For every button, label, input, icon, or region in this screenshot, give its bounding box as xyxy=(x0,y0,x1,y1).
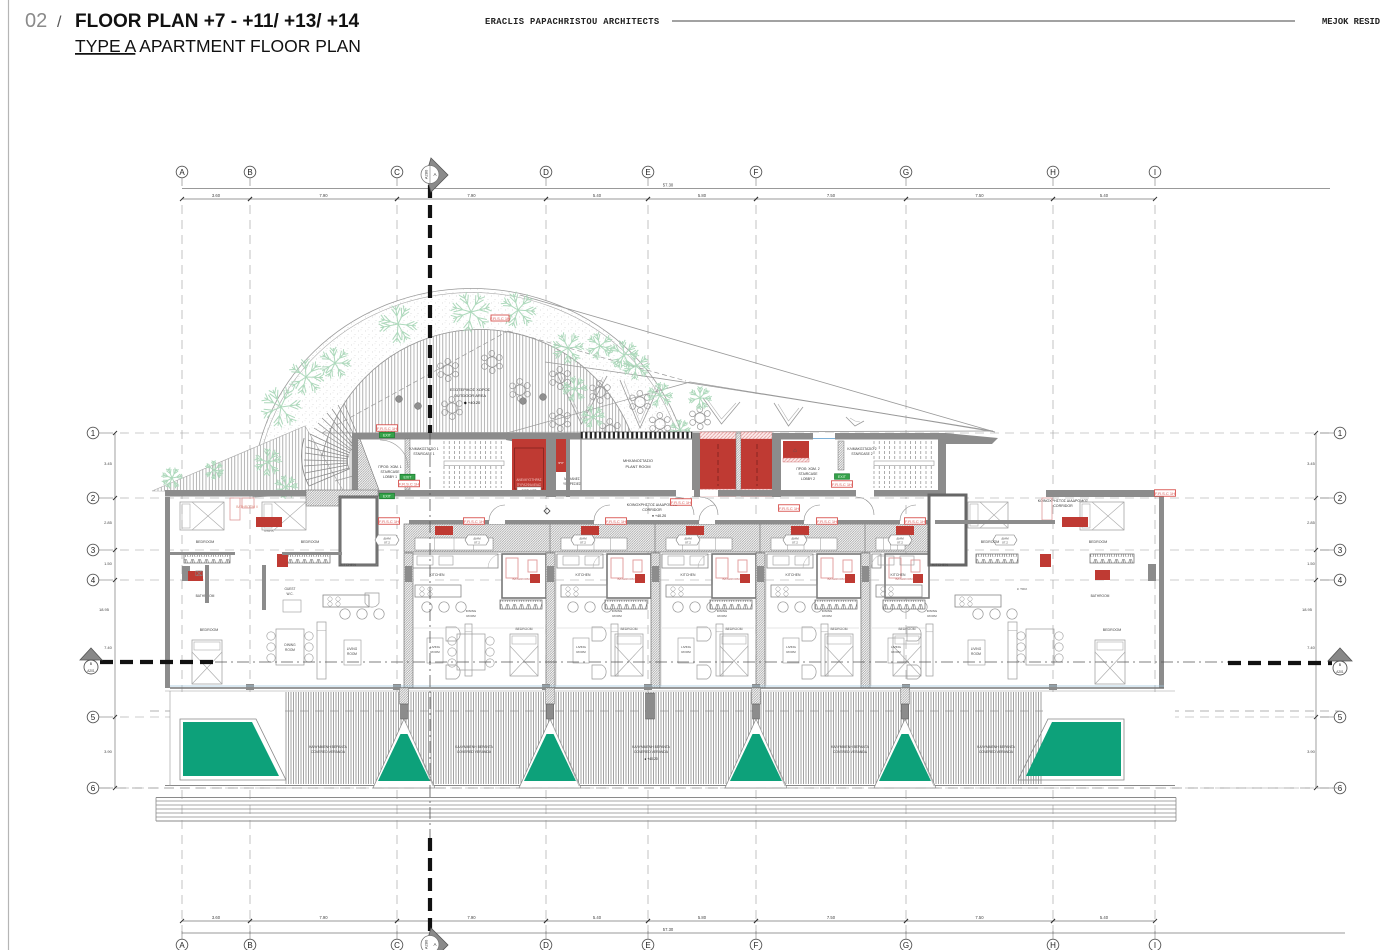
svg-text:ΠΡΟΘ. ΧΩΜ. 2: ΠΡΟΘ. ΧΩΜ. 2 xyxy=(796,467,819,471)
svg-text:7.40: 7.40 xyxy=(104,645,113,650)
svg-text:BATHROOM: BATHROOM xyxy=(895,577,913,581)
svg-text:5.80: 5.80 xyxy=(698,915,707,920)
svg-text:A201: A201 xyxy=(87,669,95,673)
svg-text:DINING: DINING xyxy=(284,643,296,647)
svg-text:MEJOK RESID: MEJOK RESID xyxy=(1322,17,1380,27)
svg-text:3.90: 3.90 xyxy=(104,749,113,754)
svg-text:● +40.20: ● +40.20 xyxy=(652,514,666,518)
svg-text:KITCHEN: KITCHEN xyxy=(932,563,948,567)
svg-text:KITCHEN: KITCHEN xyxy=(786,573,801,577)
svg-text:LOBBY 1: LOBBY 1 xyxy=(383,475,397,479)
svg-text:A: A xyxy=(179,168,185,177)
svg-text:7.40: 7.40 xyxy=(1307,645,1316,650)
svg-text:07.2: 07.2 xyxy=(685,541,691,545)
svg-text:1: 1 xyxy=(91,429,96,438)
svg-text:STAIRCASE: STAIRCASE xyxy=(381,470,401,474)
svg-text:ΚΑΛΥΜΜΕΝΗ ΒΕΡΑΝΤΑ: ΚΑΛΥΜΜΕΝΗ ΒΕΡΑΝΤΑ xyxy=(455,745,494,749)
svg-text:EXIT: EXIT xyxy=(838,475,847,479)
svg-text:⌂: ⌂ xyxy=(793,448,797,454)
svg-text:ΚΑΛΥΜΜΕΝΗ ΒΕΡΑΝΤΑ: ΚΑΛΥΜΜΕΝΗ ΒΕΡΑΝΤΑ xyxy=(977,745,1016,749)
svg-text:C: C xyxy=(394,168,400,177)
svg-text:BATHROOM: BATHROOM xyxy=(512,577,530,581)
svg-text:LIVING: LIVING xyxy=(971,647,982,651)
svg-text:BATHROOM: BATHROOM xyxy=(617,577,635,581)
svg-text:ROOM: ROOM xyxy=(430,650,440,654)
svg-text:ROOM: ROOM xyxy=(285,648,295,652)
svg-text:LIVING: LIVING xyxy=(681,645,692,649)
svg-text:BEDROOM: BEDROOM xyxy=(196,540,215,544)
svg-text:4: 4 xyxy=(1338,576,1343,585)
svg-text:F.R.S.C 1H: F.R.S.C 1H xyxy=(377,426,397,431)
svg-text:ROOM: ROOM xyxy=(971,652,981,656)
svg-text:ΜΗΧΑΝΟΣΤΑΣΙΟ: ΜΗΧΑΝΟΣΤΑΣΙΟ xyxy=(623,459,653,463)
svg-text:KITCHEN: KITCHEN xyxy=(340,563,356,567)
svg-text:02: 02 xyxy=(25,10,47,32)
svg-text:DINING: DINING xyxy=(612,609,623,613)
svg-text:5: 5 xyxy=(91,713,96,722)
svg-text:LIVING: LIVING xyxy=(430,645,441,649)
svg-text:ROOM: ROOM xyxy=(576,650,586,654)
svg-text:7.50: 7.50 xyxy=(827,915,836,920)
svg-text:07.2: 07.2 xyxy=(384,541,390,545)
svg-text:5.80: 5.80 xyxy=(698,193,707,198)
svg-text:DINING: DINING xyxy=(927,609,938,613)
svg-text:ΠΡΟΘ. ΧΩΜ. 1: ΠΡΟΘ. ΧΩΜ. 1 xyxy=(378,465,401,469)
svg-text:BEDROOM: BEDROOM xyxy=(301,540,320,544)
svg-text:BEDROOM: BEDROOM xyxy=(515,627,532,631)
svg-text:ΚΑΛΥΜΜΕΝΗ ΒΕΡΑΝΤΑ: ΚΑΛΥΜΜΕΝΗ ΒΕΡΑΝΤΑ xyxy=(309,745,348,749)
svg-text:LIVING: LIVING xyxy=(891,645,902,649)
svg-text:DINING: DINING xyxy=(717,609,728,613)
svg-text:EXIT: EXIT xyxy=(404,476,413,480)
svg-text:3: 3 xyxy=(1338,546,1343,555)
svg-text:ROOM: ROOM xyxy=(786,650,796,654)
svg-text:CORRIDOR: CORRIDOR xyxy=(642,508,662,512)
svg-text:ΥΠΗΡΕΣΙΕΣ: ΥΠΗΡΕΣΙΕΣ xyxy=(563,482,581,486)
svg-text:KITCHEN: KITCHEN xyxy=(891,573,906,577)
svg-text:ROOM: ROOM xyxy=(347,652,357,656)
svg-text:ERACLIS PAPACHRISTOU ARCHITECT: ERACLIS PAPACHRISTOU ARCHITECTS xyxy=(485,17,660,27)
svg-text:ROOM: ROOM xyxy=(681,650,691,654)
svg-text:07.2: 07.2 xyxy=(580,541,586,545)
svg-text:BEDROOM: BEDROOM xyxy=(830,627,847,631)
svg-text:F.R.S.C 1H: F.R.S.C 1H xyxy=(379,519,399,524)
svg-text:3: 3 xyxy=(91,546,96,555)
svg-text:ΝΤΟΥΛ: ΝΤΟΥΛ xyxy=(264,529,273,533)
svg-text:G: G xyxy=(903,168,909,177)
svg-text:57.30: 57.30 xyxy=(663,183,674,188)
svg-text:6: 6 xyxy=(91,784,96,793)
svg-text:5.40: 5.40 xyxy=(1100,915,1109,920)
svg-text:I: I xyxy=(1154,941,1156,950)
svg-text:F.R.S.C 1H: F.R.S.C 1H xyxy=(1155,491,1175,496)
svg-text:H: H xyxy=(1050,168,1056,177)
svg-text:LIVING: LIVING xyxy=(576,645,587,649)
svg-text:3. ΤΟΙΛ: 3. ΤΟΙΛ xyxy=(1017,587,1027,591)
svg-text:GUEST: GUEST xyxy=(285,587,296,591)
svg-text:A280: A280 xyxy=(424,939,429,949)
svg-text:ΚΛΙΜΑΚΟΣΤΑΣΙΟ 2: ΚΛΙΜΑΚΟΣΤΑΣΙΟ 2 xyxy=(847,447,876,451)
svg-text:57.30: 57.30 xyxy=(663,927,674,932)
svg-text:5.40: 5.40 xyxy=(1100,193,1109,198)
svg-text:F.R.S.C 1H: F.R.S.C 1H xyxy=(671,500,691,505)
svg-text:F.R.S.C 1H: F.R.S.C 1H xyxy=(399,481,419,486)
svg-text:A201: A201 xyxy=(1336,670,1344,674)
svg-text:LOBBY 2: LOBBY 2 xyxy=(801,477,815,481)
svg-text:STAIRCASE: STAIRCASE xyxy=(799,472,819,476)
svg-text:ΨΥΓ: ΨΥΓ xyxy=(558,461,565,465)
svg-text:● +40.20: ● +40.20 xyxy=(644,757,658,761)
svg-text:6: 6 xyxy=(1338,784,1343,793)
svg-text:STAIRCASE 1: STAIRCASE 1 xyxy=(413,452,434,456)
svg-text:BEDROOM: BEDROOM xyxy=(981,540,1000,544)
svg-text:5.40: 5.40 xyxy=(593,193,602,198)
svg-text:5.40: 5.40 xyxy=(593,915,602,920)
svg-text:PLANT ROOM: PLANT ROOM xyxy=(625,465,650,469)
svg-text:1.50: 1.50 xyxy=(104,561,113,566)
svg-text:A: A xyxy=(433,172,436,177)
svg-text:5: 5 xyxy=(1338,713,1343,722)
svg-text:BEDROOM: BEDROOM xyxy=(200,628,219,632)
svg-text:F.R.S.C 1H: F.R.S.C 1H xyxy=(905,519,925,524)
svg-text:TYPE A APARTMENT FLOOR PLAN: TYPE A APARTMENT FLOOR PLAN xyxy=(75,36,361,56)
svg-text:I: I xyxy=(1154,168,1156,177)
svg-text:STAIRCASE 2: STAIRCASE 2 xyxy=(851,452,872,456)
svg-text:D: D xyxy=(543,941,549,950)
svg-text:ROOM: ROOM xyxy=(466,614,476,618)
svg-text:07.2: 07.2 xyxy=(1002,541,1008,545)
svg-text:2.85: 2.85 xyxy=(104,520,113,525)
svg-text:1: 1 xyxy=(1338,429,1343,438)
svg-text:1.50: 1.50 xyxy=(1307,561,1316,566)
svg-text:OUTDOOR AREA: OUTDOOR AREA xyxy=(454,393,487,398)
svg-text:ROOM: ROOM xyxy=(822,614,832,618)
svg-text:07.2: 07.2 xyxy=(474,541,480,545)
svg-text:ΚΛΙΜΑΚΟΣΤΑΣΙΟ 1: ΚΛΙΜΑΚΟΣΤΑΣΙΟ 1 xyxy=(409,447,438,451)
svg-text:3.45: 3.45 xyxy=(104,461,113,466)
svg-text:A: A xyxy=(433,942,436,947)
svg-text:BEDROOM: BEDROOM xyxy=(725,627,742,631)
svg-text:F.R.S.C 1H: F.R.S.C 1H xyxy=(464,519,484,524)
svg-text:DINING: DINING xyxy=(822,609,833,613)
svg-text:18.95: 18.95 xyxy=(1302,607,1313,612)
svg-text:ROOM: ROOM xyxy=(717,614,727,618)
svg-text:EXIT: EXIT xyxy=(383,495,392,499)
svg-text:LIVING: LIVING xyxy=(786,645,797,649)
svg-text:H: H xyxy=(1050,941,1056,950)
svg-text:COVERED VERANDA: COVERED VERANDA xyxy=(634,750,669,754)
svg-text:G: G xyxy=(903,941,909,950)
svg-text:KITCHEN: KITCHEN xyxy=(430,573,445,577)
svg-text:B: B xyxy=(247,168,252,177)
svg-text:ΕΞΩΤΕΡΙΚΟΣ ΧΩΡΟΣ: ΕΞΩΤΕΡΙΚΟΣ ΧΩΡΟΣ xyxy=(450,387,491,392)
svg-text:B: B xyxy=(247,941,252,950)
svg-text:ΑΝΕΛΚΥΣΤΗΡΑΣ: ΑΝΕΛΚΥΣΤΗΡΑΣ xyxy=(516,478,541,482)
svg-text:FLOOR PLAN +7 - +11/ +13/ +14: FLOOR PLAN +7 - +11/ +13/ +14 xyxy=(75,11,360,32)
svg-text:ΚΑΛΥΜΜΕΝΗ ΒΕΡΑΝΤΑ: ΚΑΛΥΜΜΕΝΗ ΒΕΡΑΝΤΑ xyxy=(831,745,870,749)
svg-text:7.90: 7.90 xyxy=(467,915,476,920)
svg-text:7.90: 7.90 xyxy=(319,193,328,198)
svg-text:◆ +40.20: ◆ +40.20 xyxy=(464,400,481,405)
svg-text:DINING: DINING xyxy=(466,609,477,613)
svg-text:7.50: 7.50 xyxy=(827,193,836,198)
svg-text:7.90: 7.90 xyxy=(467,193,476,198)
svg-text:07.2: 07.2 xyxy=(897,541,903,545)
svg-text:BATHROOM: BATHROOM xyxy=(722,577,740,581)
svg-text:ΚΟΙΝΟΧΡΗΣΤΟΣ ΔΙΑΔΡΟΜΟΣ: ΚΟΙΝΟΧΡΗΣΤΟΣ ΔΙΑΔΡΟΜΟΣ xyxy=(1038,499,1089,503)
svg-text:ΠΥΡΑΣΦΑΛΕΙΑΣ: ΠΥΡΑΣΦΑΛΕΙΑΣ xyxy=(517,483,541,487)
svg-text:KITCHEN: KITCHEN xyxy=(576,573,591,577)
svg-text:BEDROOM: BEDROOM xyxy=(620,627,637,631)
svg-text:A280: A280 xyxy=(424,169,429,179)
svg-text:BEDROOM: BEDROOM xyxy=(1103,628,1122,632)
svg-text:F.R.S.C 1H: F.R.S.C 1H xyxy=(832,482,852,487)
svg-text:2: 2 xyxy=(1338,494,1343,503)
svg-text:W.C.: W.C. xyxy=(287,592,294,596)
svg-text:D: D xyxy=(543,168,549,177)
svg-text:CORRIDOR: CORRIDOR xyxy=(1053,504,1073,508)
svg-text:/: / xyxy=(57,14,62,31)
svg-text:07.2: 07.2 xyxy=(792,541,798,545)
svg-text:7.90: 7.90 xyxy=(319,915,328,920)
svg-text:3.90: 3.90 xyxy=(1307,749,1316,754)
svg-text:⌧: ⌧ xyxy=(195,570,203,578)
svg-text:4: 4 xyxy=(91,576,96,585)
svg-text:F.R.S.C 1H: F.R.S.C 1H xyxy=(779,506,799,511)
svg-text:F.R.S.C 1H: F.R.S.C 1H xyxy=(606,519,626,524)
svg-text:ROOM: ROOM xyxy=(927,614,937,618)
svg-text:E: E xyxy=(645,941,650,950)
svg-text:7.50: 7.50 xyxy=(975,193,984,198)
svg-text:E: E xyxy=(645,168,650,177)
svg-text:COVERED VERANDA: COVERED VERANDA xyxy=(311,750,346,754)
svg-text:COVERED VERANDA: COVERED VERANDA xyxy=(979,750,1014,754)
svg-text:C: C xyxy=(394,941,400,950)
svg-text:7.50: 7.50 xyxy=(975,915,984,920)
svg-text:BEDROOM: BEDROOM xyxy=(1089,540,1108,544)
svg-text:ΚΑΛΥΜΜΕΝΗ ΒΕΡΑΝΤΑ: ΚΑΛΥΜΜΕΝΗ ΒΕΡΑΝΤΑ xyxy=(632,745,671,749)
svg-text:BATHROOM: BATHROOM xyxy=(827,577,845,581)
svg-text:2: 2 xyxy=(91,494,96,503)
svg-text:2.85: 2.85 xyxy=(1307,520,1316,525)
svg-text:3.60: 3.60 xyxy=(212,915,221,920)
svg-text:F: F xyxy=(754,168,759,177)
svg-text:3.45: 3.45 xyxy=(1307,461,1316,466)
svg-text:ROOM: ROOM xyxy=(891,650,901,654)
svg-text:A: A xyxy=(179,941,185,950)
svg-text:LIVING: LIVING xyxy=(347,647,358,651)
svg-text:COVERED VERANDA: COVERED VERANDA xyxy=(457,750,492,754)
svg-text:F.R.S.C 1H: F.R.S.C 1H xyxy=(817,519,837,524)
svg-text:EXIT: EXIT xyxy=(383,434,392,438)
svg-text:BATHROOM: BATHROOM xyxy=(1091,594,1110,598)
svg-text:3.60: 3.60 xyxy=(212,193,221,198)
svg-text:KITCHEN: KITCHEN xyxy=(681,573,696,577)
svg-text:18.95: 18.95 xyxy=(99,607,110,612)
svg-text:ROOM: ROOM xyxy=(612,614,622,618)
svg-text:F: F xyxy=(754,941,759,950)
svg-text:F.R.S.C 1H: F.R.S.C 1H xyxy=(490,316,510,321)
svg-text:COVERED VERANDA: COVERED VERANDA xyxy=(833,750,868,754)
